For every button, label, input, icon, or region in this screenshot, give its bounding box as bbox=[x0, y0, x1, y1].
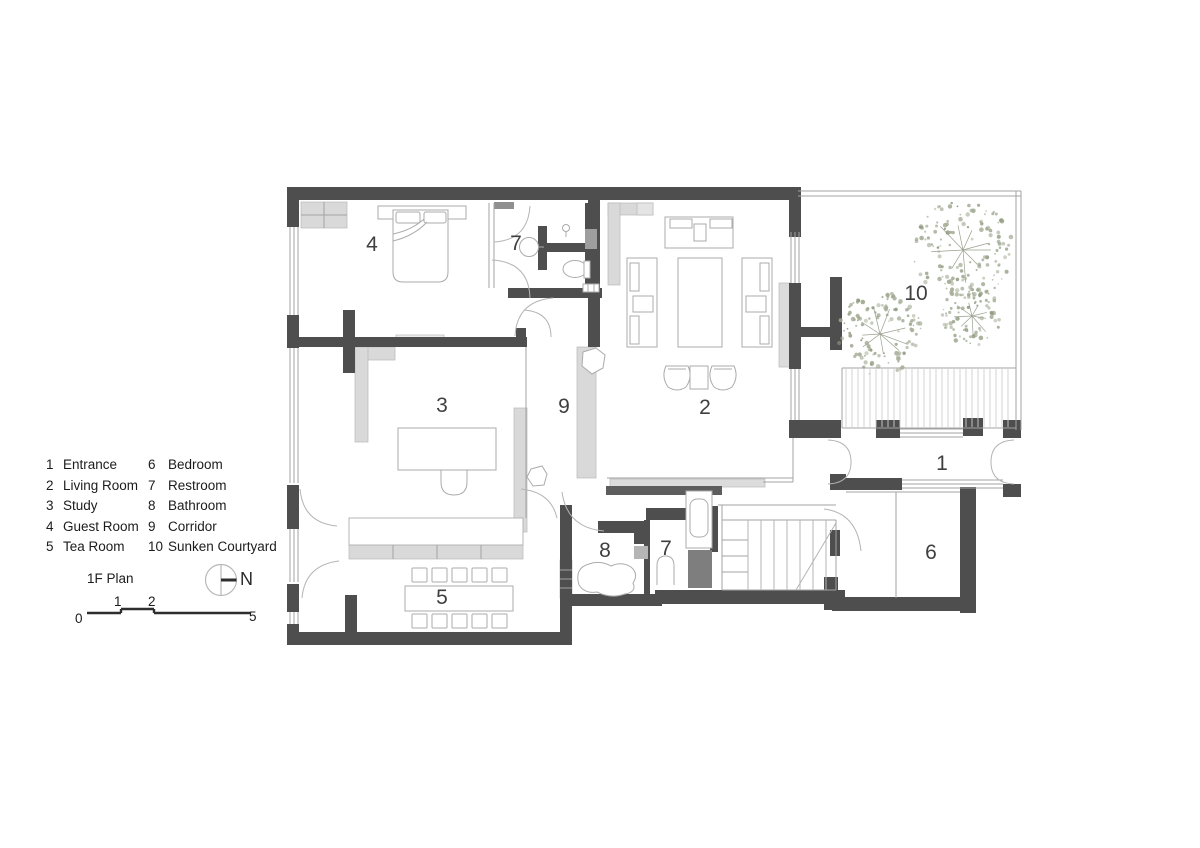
coffee-table bbox=[678, 258, 722, 347]
legend-item-label: Living Room bbox=[63, 478, 138, 493]
tea-chair bbox=[492, 614, 507, 628]
legend-item-study: 3Study bbox=[46, 498, 139, 519]
tea-chair bbox=[412, 614, 427, 628]
legend-item-number: 2 bbox=[46, 478, 63, 493]
tea-chair bbox=[452, 568, 467, 582]
legend-item-restroom: 7Restroom bbox=[148, 478, 277, 499]
wall bbox=[585, 203, 597, 229]
sofa-cushion bbox=[710, 219, 732, 228]
room-label-restroom-lower: 7 bbox=[660, 537, 672, 560]
legend-item-label: Tea Room bbox=[63, 539, 125, 554]
legend-item-label: Bathroom bbox=[168, 498, 227, 513]
room-label-living-room: 2 bbox=[699, 396, 711, 419]
tea-chair bbox=[472, 568, 487, 582]
built-in-cabinet bbox=[637, 203, 653, 215]
room-label-tea-room: 5 bbox=[436, 586, 448, 609]
study-bench bbox=[349, 518, 523, 545]
legend-item-living-room: 2Living Room bbox=[46, 478, 139, 499]
room-label-bedroom: 6 bbox=[925, 541, 937, 564]
floor-plan-page: 123456778910 1Entrance2Living Room3Study… bbox=[0, 0, 1200, 848]
wall bbox=[789, 420, 841, 438]
room-label-study: 3 bbox=[436, 394, 448, 417]
legend-item-number: 8 bbox=[148, 498, 168, 513]
legend-item-bedroom: 6Bedroom bbox=[148, 457, 277, 478]
floor-grate bbox=[583, 284, 599, 292]
legend-item-guest-room: 4Guest Room bbox=[46, 519, 139, 540]
scale-label-0: 0 bbox=[75, 611, 83, 626]
wall bbox=[655, 590, 845, 604]
wall bbox=[516, 328, 526, 347]
toilet-tank bbox=[584, 261, 590, 278]
tea-table bbox=[405, 586, 513, 611]
tea-chair bbox=[452, 614, 467, 628]
legend-item-number: 5 bbox=[46, 539, 63, 554]
cabinet-panel bbox=[688, 550, 712, 588]
lounge-pillow bbox=[760, 263, 769, 291]
wall-vent bbox=[494, 202, 514, 209]
legend-column-2: 6Bedroom7Restroom8Bathroom9Corridor10Sun… bbox=[148, 457, 277, 560]
tea-chair bbox=[432, 568, 447, 582]
lounge-pillow bbox=[760, 316, 769, 344]
wall bbox=[547, 243, 590, 252]
legend-item-number: 1 bbox=[46, 457, 63, 472]
legend-item-corridor: 9Corridor bbox=[148, 519, 277, 540]
floor-plan-drawing: 123456778910 bbox=[0, 0, 1200, 848]
tea-chair bbox=[472, 614, 487, 628]
side-table bbox=[690, 366, 708, 389]
wall bbox=[646, 508, 690, 520]
scale-bar bbox=[87, 609, 250, 613]
legend-item-label: Sunken Courtyard bbox=[168, 539, 277, 554]
built-in-cabinet bbox=[610, 479, 765, 487]
built-in-cabinet bbox=[608, 203, 620, 285]
door-swing bbox=[828, 440, 851, 462]
legend-item-label: Study bbox=[63, 498, 98, 513]
legend-item-label: Entrance bbox=[63, 457, 117, 472]
desk-chair bbox=[441, 470, 467, 495]
plan-title: 1F Plan bbox=[87, 571, 134, 586]
desk bbox=[398, 428, 496, 470]
wall bbox=[801, 327, 831, 337]
lounge-cushion bbox=[746, 296, 766, 312]
scale-label-1: 1 bbox=[114, 594, 122, 609]
wall bbox=[789, 187, 801, 237]
door-swing bbox=[824, 509, 861, 551]
wall bbox=[287, 584, 299, 612]
wall bbox=[832, 597, 976, 611]
door-swing bbox=[991, 462, 1014, 484]
wall bbox=[960, 487, 976, 613]
sofa-center-table bbox=[694, 224, 706, 241]
toilet bbox=[563, 261, 587, 278]
barrel-chair bbox=[664, 366, 690, 390]
water-heater bbox=[634, 546, 648, 559]
toilet bbox=[657, 556, 674, 585]
legend-item-number: 3 bbox=[46, 498, 63, 513]
deck-hatch bbox=[846, 369, 1008, 427]
legend-item-sunken-courtyard: 10Sunken Courtyard bbox=[148, 539, 277, 560]
scale-label-2: 2 bbox=[148, 594, 156, 609]
wall bbox=[345, 595, 357, 637]
legend-item-label: Bedroom bbox=[168, 457, 223, 472]
tea-chair bbox=[492, 568, 507, 582]
legend-item-number: 6 bbox=[148, 457, 168, 472]
room-label-entrance: 1 bbox=[936, 452, 948, 475]
door-swing bbox=[991, 440, 1014, 462]
wall bbox=[560, 505, 572, 645]
bed-pillow bbox=[424, 212, 446, 223]
tree-icon bbox=[914, 202, 1013, 300]
built-in-cabinet bbox=[349, 545, 523, 559]
room-label-corridor: 9 bbox=[558, 395, 570, 418]
washbasin bbox=[520, 238, 539, 257]
wall bbox=[287, 485, 299, 529]
wall bbox=[287, 187, 299, 227]
stone bbox=[527, 466, 547, 486]
legend-item-bathroom: 8Bathroom bbox=[148, 498, 277, 519]
lounge-pillow bbox=[630, 263, 639, 291]
sofa-cushion bbox=[670, 219, 692, 228]
room-label-guest-room: 4 bbox=[366, 233, 378, 256]
legend-item-number: 4 bbox=[46, 519, 63, 534]
north-label: N bbox=[240, 569, 253, 590]
room-label-bathroom: 8 bbox=[599, 539, 611, 562]
legend-item-entrance: 1Entrance bbox=[46, 457, 139, 478]
room-label-sunken-courtyard: 10 bbox=[904, 282, 927, 305]
wall bbox=[287, 187, 798, 200]
legend-column-1: 1Entrance2Living Room3Study4Guest Room5T… bbox=[46, 457, 139, 560]
wall bbox=[343, 310, 355, 373]
legend-item-number: 9 bbox=[148, 519, 168, 534]
scale-label-5: 5 bbox=[249, 609, 257, 624]
wall bbox=[287, 632, 572, 645]
legend-item-number: 10 bbox=[148, 539, 168, 554]
wall bbox=[1003, 484, 1021, 497]
legend-item-number: 7 bbox=[148, 478, 168, 493]
wall bbox=[287, 337, 527, 347]
wall bbox=[634, 522, 648, 544]
stairs bbox=[718, 505, 836, 590]
wall bbox=[830, 478, 902, 490]
wall bbox=[830, 530, 840, 556]
tea-chair bbox=[432, 614, 447, 628]
shower-head bbox=[563, 225, 570, 232]
wall bbox=[789, 283, 801, 369]
tea-chair bbox=[412, 568, 427, 582]
legend-item-tea-room: 5Tea Room bbox=[46, 539, 139, 560]
bathtub bbox=[578, 562, 636, 596]
wall bbox=[538, 226, 547, 270]
legend-item-label: Restroom bbox=[168, 478, 227, 493]
built-in-cabinet bbox=[355, 347, 368, 442]
wall bbox=[1003, 420, 1021, 438]
legend-item-label: Corridor bbox=[168, 519, 217, 534]
built-in-cabinet bbox=[514, 408, 527, 532]
sink-basin bbox=[690, 499, 708, 537]
barrel-chair bbox=[710, 366, 736, 390]
lounge-cushion bbox=[633, 296, 653, 312]
door-swing bbox=[300, 489, 337, 526]
door-swing bbox=[302, 561, 339, 598]
wall bbox=[830, 277, 842, 350]
bed-pillow bbox=[396, 212, 420, 223]
room-label-restroom-top: 7 bbox=[510, 232, 522, 255]
legend-item-label: Guest Room bbox=[63, 519, 139, 534]
door-swing bbox=[524, 310, 551, 337]
wall-mid bbox=[585, 229, 597, 249]
lounge-pillow bbox=[630, 316, 639, 344]
